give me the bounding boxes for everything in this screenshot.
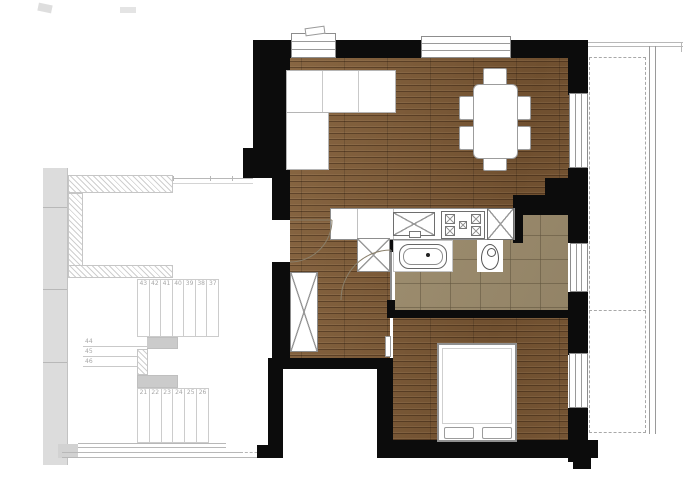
sofa-chaise <box>286 112 329 170</box>
neighbor-bottom-line <box>62 452 243 453</box>
bed-frame <box>437 343 517 442</box>
stair-step: 38 <box>196 280 208 336</box>
wall-kitchen-back <box>513 195 588 215</box>
stair-step: 44 <box>83 337 147 347</box>
wall-bath-left-lower <box>387 300 395 318</box>
wall-left-upper <box>253 40 290 178</box>
stove-burner <box>445 214 455 224</box>
stove-center <box>459 221 467 229</box>
bathroom-floor-upper <box>523 215 568 240</box>
hall-wardrobe <box>290 272 318 352</box>
wall-right-top <box>568 40 588 95</box>
neighbor-block <box>58 444 78 458</box>
bed-mattress <box>442 348 512 424</box>
stair-step: 39 <box>184 280 196 336</box>
connection-tick <box>173 176 174 181</box>
neighbor-wall-joint <box>43 289 67 290</box>
wall-top-mid <box>336 40 421 58</box>
neighbor-wall-joint <box>43 207 67 208</box>
dining-table <box>473 84 518 159</box>
toilet-bowl <box>481 244 499 270</box>
stair-step: 25 <box>185 389 197 442</box>
balcony-railing <box>649 46 656 434</box>
wall-left-foot <box>257 445 283 458</box>
stair-step: 22 <box>150 389 162 442</box>
neighbor-bottom-line <box>78 447 226 448</box>
balcony-top-line <box>588 46 683 47</box>
wall-right-bath <box>568 292 588 355</box>
kitchen-sink-drain <box>409 231 421 238</box>
sink-inner-ring <box>403 248 443 265</box>
window-living <box>291 33 336 58</box>
kitchen-strip-floor <box>290 195 513 208</box>
wall-bedroom-bottom <box>377 440 598 458</box>
connection-tick <box>210 176 211 181</box>
stair-step: 41 <box>161 280 173 336</box>
stairs-hatch-block <box>137 349 148 375</box>
connection-line <box>173 178 253 179</box>
stair-step: 26 <box>197 389 208 442</box>
wall-right-bedroom <box>568 408 588 462</box>
sofa-seats <box>286 70 396 113</box>
smudge-mark <box>37 3 52 14</box>
stair-step: 42 <box>150 280 162 336</box>
neighbor-hatched-wall-top <box>68 175 173 193</box>
neighbor-wall-strip <box>43 168 68 465</box>
counter-seam <box>357 209 358 239</box>
neighbor-hatched-wall-bottom <box>68 265 173 278</box>
smudge-mark <box>120 7 136 13</box>
wall-left-hall-upper <box>272 178 290 220</box>
wall-left-lower <box>268 369 283 445</box>
bathroom-sink <box>399 244 447 269</box>
neighbor-wall-joint <box>43 362 67 363</box>
wall-right-foot <box>573 458 591 469</box>
connection-tick <box>232 176 233 181</box>
balcony-outline <box>589 57 646 433</box>
stove-burner <box>471 226 481 236</box>
stair-step: 21 <box>138 389 150 442</box>
kitchen-tall-cabinet <box>487 208 514 240</box>
stove <box>441 211 485 239</box>
window-dining-right <box>569 93 588 168</box>
connection-line <box>173 183 253 184</box>
window-dining-top <box>421 36 511 58</box>
balcony-divider <box>589 310 646 311</box>
balcony-top-tick <box>681 42 682 52</box>
neighbor-hatched-wall-left <box>68 193 83 267</box>
bed-pillow <box>444 427 474 439</box>
neighbor-bottom-line <box>62 457 267 458</box>
sink-faucet-dot <box>426 253 430 257</box>
wall-hall-bottom <box>268 358 390 369</box>
bedroom-door-leaf <box>385 336 391 357</box>
balcony-top-line <box>588 42 683 43</box>
wall-left-hall-lower <box>272 262 290 358</box>
stair-step: 37 <box>207 280 218 336</box>
wall-left-notch <box>243 148 257 178</box>
floor-plan-canvas: { "floor_plan": { "colors": { "wall": "#… <box>0 0 700 500</box>
wall-bath-bottom <box>387 310 570 318</box>
neighbor-bottom-line <box>78 443 226 444</box>
hall-closet <box>357 238 390 272</box>
window-bedroom <box>569 353 588 408</box>
stair-step: 40 <box>173 280 185 336</box>
stairs-lower-flight: 21 22 23 24 25 26 <box>137 388 209 443</box>
toilet-flush <box>487 248 496 257</box>
stove-burner <box>471 214 481 224</box>
stair-step: 23 <box>162 389 174 442</box>
stair-step: 24 <box>173 389 185 442</box>
stove-burner <box>445 226 455 236</box>
bed-pillow <box>482 427 512 439</box>
stairs-upper-flight: 43 42 41 40 39 38 37 <box>137 279 219 337</box>
stairs-landing <box>137 375 178 388</box>
stair-step: 43 <box>138 280 150 336</box>
window-bathroom <box>570 243 588 292</box>
